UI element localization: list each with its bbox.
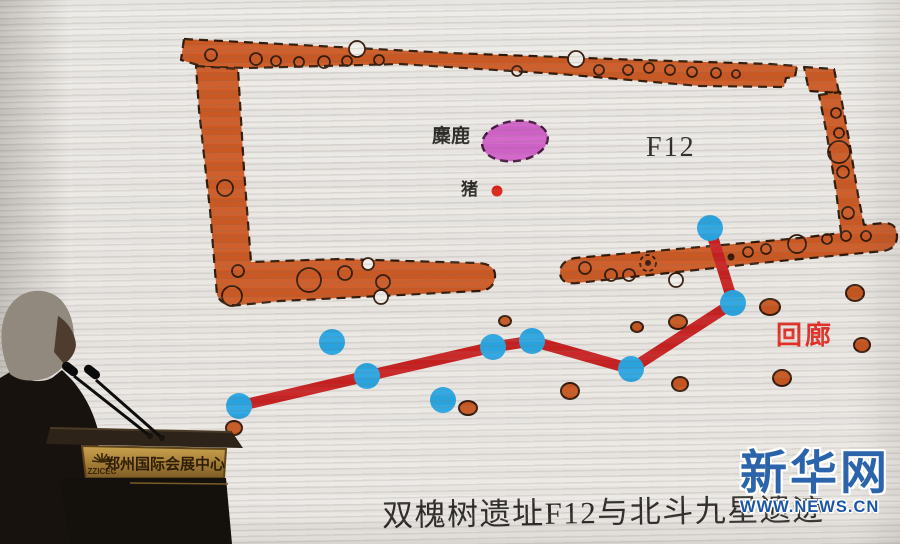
news-watermark: 新华网 WWW.NEWS.CN bbox=[740, 449, 900, 517]
podium-gold-trim bbox=[130, 483, 228, 484]
conference-photo: 麋鹿 猪 F12 回廊 双槐树遗址F12与北斗九星遗迹 bbox=[0, 0, 900, 544]
venue-name-text: 郑州国际会展中心 bbox=[105, 455, 225, 473]
microphone-mount bbox=[147, 433, 153, 439]
xinhuanet-url: WWW.NEWS.CN bbox=[740, 498, 900, 517]
podium-body bbox=[60, 478, 232, 544]
microphone-mount bbox=[159, 435, 165, 441]
xinhuanet-logo: 新华网 bbox=[740, 449, 900, 496]
microphone-capsule bbox=[82, 363, 102, 381]
